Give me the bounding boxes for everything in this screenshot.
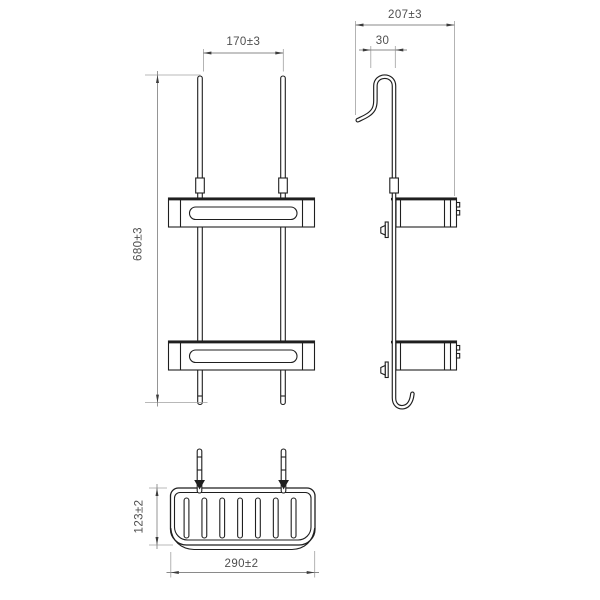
shelf-edge-tab — [457, 203, 460, 208]
rod-collar — [196, 178, 205, 193]
dim-label-hook-spacing: 170±3 — [226, 36, 260, 48]
shelf-edge-tab — [457, 346, 460, 351]
dim-basket-depth: 123±2 — [134, 484, 174, 549]
drain-slot — [202, 498, 207, 538]
technical-drawing: 170±3 680±3 — [0, 0, 600, 600]
dim-label-overall-height: 680±3 — [133, 227, 145, 261]
wall-clip-lower — [381, 362, 388, 378]
rod-collar — [279, 178, 288, 193]
front-upper-shelf — [169, 198, 315, 227]
basket-slots — [184, 498, 296, 538]
dim-label-basket-depth: 123±2 — [134, 500, 146, 534]
drawing-canvas: 170±3 680±3 — [0, 0, 600, 600]
dim-hook-spacing: 170±3 — [203, 36, 283, 72]
side-view: 207±3 30 — [356, 9, 460, 407]
front-view: 170±3 680±3 — [133, 36, 315, 407]
dim-label-overall-depth: 207±3 — [388, 9, 422, 21]
wall-clip-upper — [381, 222, 388, 238]
dim-label-basket-width: 290±2 — [225, 558, 259, 570]
drain-slot — [273, 498, 278, 538]
drain-slot — [220, 498, 225, 538]
side-upper-shelf — [391, 198, 460, 227]
plan-hooks — [194, 449, 289, 493]
dim-overall-depth: 207±3 — [356, 9, 455, 196]
dim-hook-opening: 30 — [359, 35, 407, 68]
drain-slot — [238, 498, 243, 538]
drain-slot — [291, 498, 296, 538]
dim-label-hook-opening: 30 — [376, 35, 390, 47]
shelf-edge-tab — [457, 211, 460, 216]
side-lower-shelf — [391, 341, 460, 370]
drain-slot — [184, 498, 189, 538]
dim-basket-width: 290±2 — [167, 551, 320, 578]
rod-collar-side — [390, 178, 399, 193]
drain-slot — [256, 498, 261, 538]
bottom-view: 123±2 290±2 — [134, 449, 320, 578]
shelf-edge-tab — [457, 354, 460, 359]
front-lower-shelf — [169, 341, 315, 370]
